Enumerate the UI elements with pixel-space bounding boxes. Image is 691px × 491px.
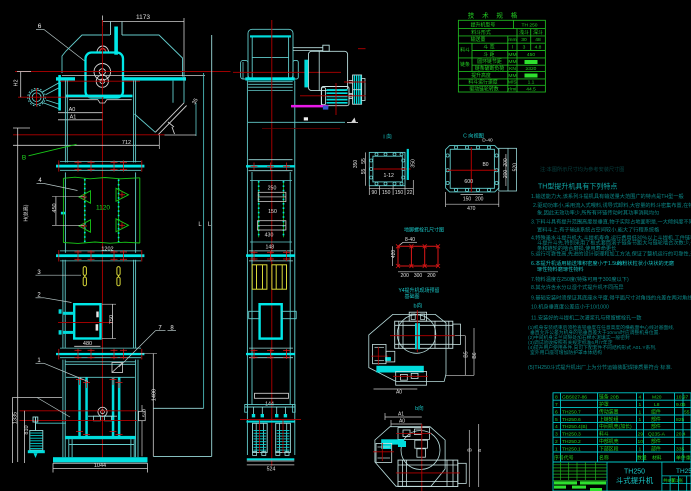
svg-text:中间机壳(加长): 中间机壳(加长) [599, 423, 632, 430]
svg-text:琢性物料磨琢性物料: 琢性物料磨琢性物料 [537, 265, 584, 273]
svg-text:4: 4 [555, 424, 558, 430]
svg-text:≥320: ≥320 [526, 66, 537, 72]
svg-text:I 向: I 向 [383, 133, 392, 141]
svg-text:技 术 规 格: 技 术 规 格 [468, 11, 520, 20]
svg-text:l: l [512, 45, 513, 51]
svg-text:TH250.7: TH250.7 [562, 409, 581, 415]
svg-text:TH型提升机具有下列特点: TH型提升机具有下列特点 [538, 182, 617, 191]
svg-text:150: 150 [463, 197, 472, 203]
svg-text:中部机壳: 中部机壳 [599, 438, 619, 445]
svg-text:TH250.2: TH250.2 [562, 439, 581, 445]
svg-text:335: 335 [676, 446, 684, 452]
svg-text:B0: B0 [482, 162, 488, 168]
svg-text:1.输送能力大,该系列斗提机具有输送量大范围广的特点是TH型: 1.输送能力大,该系列斗提机具有输送量大范围广的特点是TH型一般 [531, 192, 684, 200]
svg-text:象,因此无效功率少,所所有环链传动时其功率消耗均匀: 象,因此无效功率少,所所有环链传动时其功率消耗均匀 [537, 209, 659, 217]
svg-text:H(总高): H(总高) [23, 204, 30, 221]
svg-text:1400: 1400 [152, 389, 158, 401]
svg-text:基础图: 基础图 [404, 293, 419, 300]
svg-text:48: 48 [535, 37, 541, 43]
svg-text:TH250.4(B): TH250.4(B) [562, 424, 588, 430]
svg-text:350: 350 [353, 160, 359, 169]
svg-text:200: 200 [401, 273, 410, 279]
svg-text:200: 200 [427, 273, 436, 279]
svg-text:30: 30 [521, 37, 527, 43]
svg-text:200: 200 [503, 170, 509, 179]
svg-text:55: 55 [361, 158, 367, 164]
svg-text:TH250.1: TH250.1 [562, 446, 581, 452]
svg-text:7.物料温度在250度(特殊可用于300度以下): 7.物料温度在250度(特殊可用于300度以下) [531, 275, 629, 283]
svg-text:825: 825 [676, 417, 684, 423]
svg-text:TH250.3: TH250.3 [562, 432, 581, 438]
svg-text:5.运行可靠性高,先进的设计原理和加工方法,保证了整机运行的: 5.运行可靠性高,先进的设计原理和加工方法,保证了整机运行的可靠性,无故障时间超 [531, 250, 691, 258]
svg-text:300: 300 [414, 273, 423, 279]
svg-text:TH250: TH250 [676, 468, 691, 475]
svg-text:Y4提升机现场预留: Y4提升机现场预留 [398, 287, 439, 294]
svg-text:名称: 名称 [599, 454, 609, 461]
svg-text:200: 200 [503, 158, 509, 167]
svg-text:2: 2 [555, 439, 558, 445]
svg-text:6.本提升机适用输送堆积密度小于1.5t/m³: 6.本提升机适用输送堆积密度小于1.5t/m³ [531, 259, 624, 267]
svg-text:(3)调试验收按照有关规定标准6月/7年定: (3)调试验收按照有关规定标准6月/7年定 [528, 339, 613, 346]
svg-text:TH250: TH250 [624, 469, 645, 476]
svg-text:传动装置: 传动装置 [599, 408, 619, 415]
svg-text:1: 1 [639, 409, 642, 415]
svg-text:4: 4 [639, 395, 642, 401]
svg-text:mm: mm [508, 38, 516, 43]
svg-text:480: 480 [83, 341, 92, 347]
svg-text:链条: 链条 [460, 61, 470, 68]
svg-text:8: 8 [555, 395, 558, 401]
svg-text:6: 6 [555, 409, 558, 415]
svg-text:护罩: 护罩 [599, 401, 609, 408]
svg-text:1-12: 1-12 [384, 173, 394, 179]
svg-text:垂直允许公差为机身的铅垂直差大于10mm时应调整机身位置.: 垂直允许公差为机身的铅垂直差大于10mm时应调整机身位置. [530, 329, 660, 336]
svg-text:链条破断负荷: 链条破断负荷 [475, 65, 504, 72]
svg-text:注:本图所示尺寸均为参考安装尺寸图: 注:本图所示尺寸均为参考安装尺寸图 [540, 165, 624, 173]
svg-text:450: 450 [52, 203, 58, 212]
svg-text:55: 55 [684, 409, 690, 415]
svg-text:470: 470 [467, 206, 476, 212]
svg-text:深斗: 深斗 [533, 29, 543, 36]
svg-text:下部区段: 下部区段 [599, 445, 619, 452]
svg-text:H2: H2 [14, 79, 20, 86]
svg-text:斗 距: 斗 距 [483, 52, 494, 58]
svg-text:5: 5 [555, 417, 558, 423]
svg-text:420: 420 [391, 250, 397, 259]
svg-text:520: 520 [513, 163, 519, 172]
svg-text:GB5027-86: GB5027-86 [562, 395, 587, 401]
svg-text:置料斗上,有子输送系统占空间较小,能大了行程系统格: 置料斗上,有子输送系统占空间较小,能大了行程系统格 [537, 226, 660, 234]
svg-text:L8: L8 [654, 402, 660, 408]
svg-text:3: 3 [523, 45, 526, 51]
svg-text:A0: A0 [399, 419, 405, 425]
svg-text:B6: B6 [472, 352, 478, 358]
svg-text:1: 1 [639, 402, 642, 408]
svg-text:材料: 材料 [652, 454, 662, 461]
svg-text:350: 350 [411, 159, 417, 168]
svg-text:(1)机身安装结束后须检查铅垂度在任意高度的横截面中心线对基: (1)机身安装结束后须检查铅垂度在任意高度的横截面中心线对基面线, [528, 324, 674, 331]
svg-text:10.97: 10.97 [676, 395, 689, 401]
svg-text:MM: MM [508, 59, 516, 65]
svg-text:1044: 1044 [94, 463, 106, 469]
svg-text:A1: A1 [398, 412, 404, 418]
svg-text:1: 1 [639, 446, 642, 452]
svg-text:第1张: 第1张 [672, 477, 684, 484]
svg-text:MM: MM [508, 73, 516, 79]
svg-text:链条 20B: 链条 20B [599, 394, 619, 401]
svg-text:MM: MM [508, 52, 516, 58]
svg-text:29: 29 [638, 432, 644, 438]
svg-text:3.下料斗具有提升范围高度是垂直,物子实际占地面积是,一大倾: 3.下料斗具有提升范围高度是垂直,物子实际占地面积是,一大倾斜度不同级数,方可有… [531, 218, 691, 226]
svg-text:4.8: 4.8 [535, 45, 542, 51]
svg-text:室外用口座可增加防护罩本体结构: 室外用口座可增加防护罩本体结构 [530, 349, 602, 356]
svg-text:圆环链节距: 圆环链节距 [477, 58, 502, 65]
svg-text:b向: b向 [414, 302, 423, 310]
svg-text:B5: B5 [463, 351, 469, 357]
svg-text:TH 250: TH 250 [521, 22, 537, 28]
svg-text:9.基础安装时须保证其底座水平度,得平面尺寸对角线的允差在两: 9.基础安装时须保证其底座水平度,得平面尺寸对角线的允差在两对角线测量值的绝 [531, 294, 691, 302]
svg-text:组件: 组件 [651, 408, 661, 415]
svg-text:A0: A0 [69, 107, 76, 113]
svg-text:部件: 部件 [651, 423, 661, 430]
svg-text:b向: b向 [415, 404, 424, 412]
svg-text:1202: 1202 [101, 246, 113, 252]
svg-text:上链轮组: 上链轮组 [599, 416, 619, 423]
svg-text:10: 10 [638, 439, 644, 445]
svg-text:200: 200 [475, 197, 484, 203]
svg-text:90: 90 [372, 190, 378, 196]
svg-text:1.1: 1.1 [528, 80, 535, 86]
svg-text:M/S: M/S [508, 80, 517, 86]
svg-text:3: 3 [555, 432, 558, 438]
svg-text:Q235-A: Q235-A [648, 432, 666, 438]
svg-text:的粉状粒状小块状的无磨: 的粉状粒状小块状的无磨 [617, 259, 674, 267]
svg-text:地脚螺栓孔尺寸图: 地脚螺栓孔尺寸图 [404, 227, 444, 234]
svg-text:22: 22 [407, 190, 413, 196]
svg-text:料斗形式: 料斗形式 [471, 29, 491, 36]
svg-text:D-40: D-40 [482, 138, 493, 144]
svg-text:提升高度: 提升高度 [471, 72, 491, 79]
svg-text:(4)提升用户使用条件,向可下配套件不同结构形式 A01.Y: (4)提升用户使用条件,向可下配套件不同结构形式 A01.Y系列, [528, 344, 656, 351]
svg-text:1: 1 [639, 417, 642, 423]
svg-text:8.其允许含水分以湿个式提升机不同而异: 8.其允许含水分以湿个式提升机不同而异 [531, 283, 624, 291]
svg-text:(2)中间机身法兰间隙处加石棉水泥填实一般密封: (2)中间机身法兰间隙处加石棉水泥填实一般密封 [528, 334, 630, 341]
svg-text:斗 宽: 斗 宽 [483, 44, 494, 51]
svg-text:A1: A1 [70, 114, 77, 120]
svg-text:斗式提升机: 斗式提升机 [616, 475, 654, 485]
svg-text:20.4: 20.4 [676, 432, 686, 438]
svg-text:序号代号: 序号代号 [554, 454, 574, 461]
svg-text:44.5: 44.5 [526, 87, 536, 93]
svg-text:810: 810 [24, 425, 30, 434]
svg-text:10.机身垂直度公差应小于10/1000: 10.机身垂直度公差应小于10/1000 [531, 303, 609, 311]
svg-text:150: 150 [268, 209, 277, 215]
svg-text:料斗运行速度: 料斗运行速度 [468, 79, 497, 86]
svg-text:TH250.6: TH250.6 [562, 417, 581, 423]
svg-text:150: 150 [395, 190, 404, 196]
svg-text:55: 55 [361, 169, 367, 175]
svg-text:料斗: 料斗 [599, 431, 609, 438]
svg-text:部件: 部件 [651, 416, 661, 423]
svg-text:驱动链轮转数: 驱动链轮转数 [469, 86, 498, 93]
svg-text:a: a [477, 449, 483, 452]
svg-text:1335: 1335 [13, 412, 19, 424]
svg-text:(5)TH250斗式提升机出厂上为分节运输装配焊接质量符合: (5)TH250斗式提升机出厂上为分节运输装配焊接质量符合 标准. [528, 363, 672, 371]
svg-text:料斗: 料斗 [460, 47, 470, 54]
svg-text:11.安装好的斗提机二次灌浆孔与预留螺栓孔一致: 11.安装好的斗提机二次灌浆孔与预留螺栓孔一致 [531, 314, 642, 322]
svg-text:部件: 部件 [651, 445, 661, 452]
svg-text:1120: 1120 [96, 204, 110, 211]
svg-text:浅斗: 浅斗 [519, 29, 529, 36]
svg-text:6: 6 [38, 23, 42, 30]
svg-text:148: 148 [266, 244, 275, 250]
svg-text:1173: 1173 [136, 14, 150, 21]
svg-text:450: 450 [527, 52, 535, 58]
svg-text:r/mi: r/mi [508, 87, 516, 93]
svg-text:7: 7 [555, 402, 558, 408]
svg-text:1: 1 [555, 446, 558, 452]
svg-text:B: B [22, 155, 26, 162]
svg-text:单件重: 单件重 [676, 454, 691, 461]
svg-text:430: 430 [265, 233, 274, 239]
svg-text:2.驱动功率小,采用流入式喂料,诱导式卸料,大容量的料斗密集: 2.驱动功率小,采用流入式喂料,诱导式卸料,大容量的料斗密集布置,在物料提升时一… [533, 201, 691, 209]
svg-text:712: 712 [122, 140, 131, 146]
svg-text:输送量: 输送量 [471, 36, 486, 43]
svg-text:M20: M20 [652, 395, 662, 401]
svg-text:250: 250 [268, 186, 277, 192]
svg-text:A0: A0 [396, 390, 402, 396]
svg-text:600: 600 [464, 179, 473, 185]
svg-text:524: 524 [267, 467, 276, 473]
svg-text:KN: KN [509, 66, 516, 72]
svg-text:提升机型号: 提升机型号 [471, 21, 496, 28]
svg-text:数量: 数量 [637, 454, 647, 461]
svg-text:9.06: 9.06 [676, 402, 686, 408]
svg-text:150: 150 [382, 190, 391, 196]
svg-text:部件: 部件 [651, 438, 661, 445]
svg-text:750: 750 [109, 315, 115, 324]
svg-text:C 向视图: C 向视图 [463, 131, 484, 139]
